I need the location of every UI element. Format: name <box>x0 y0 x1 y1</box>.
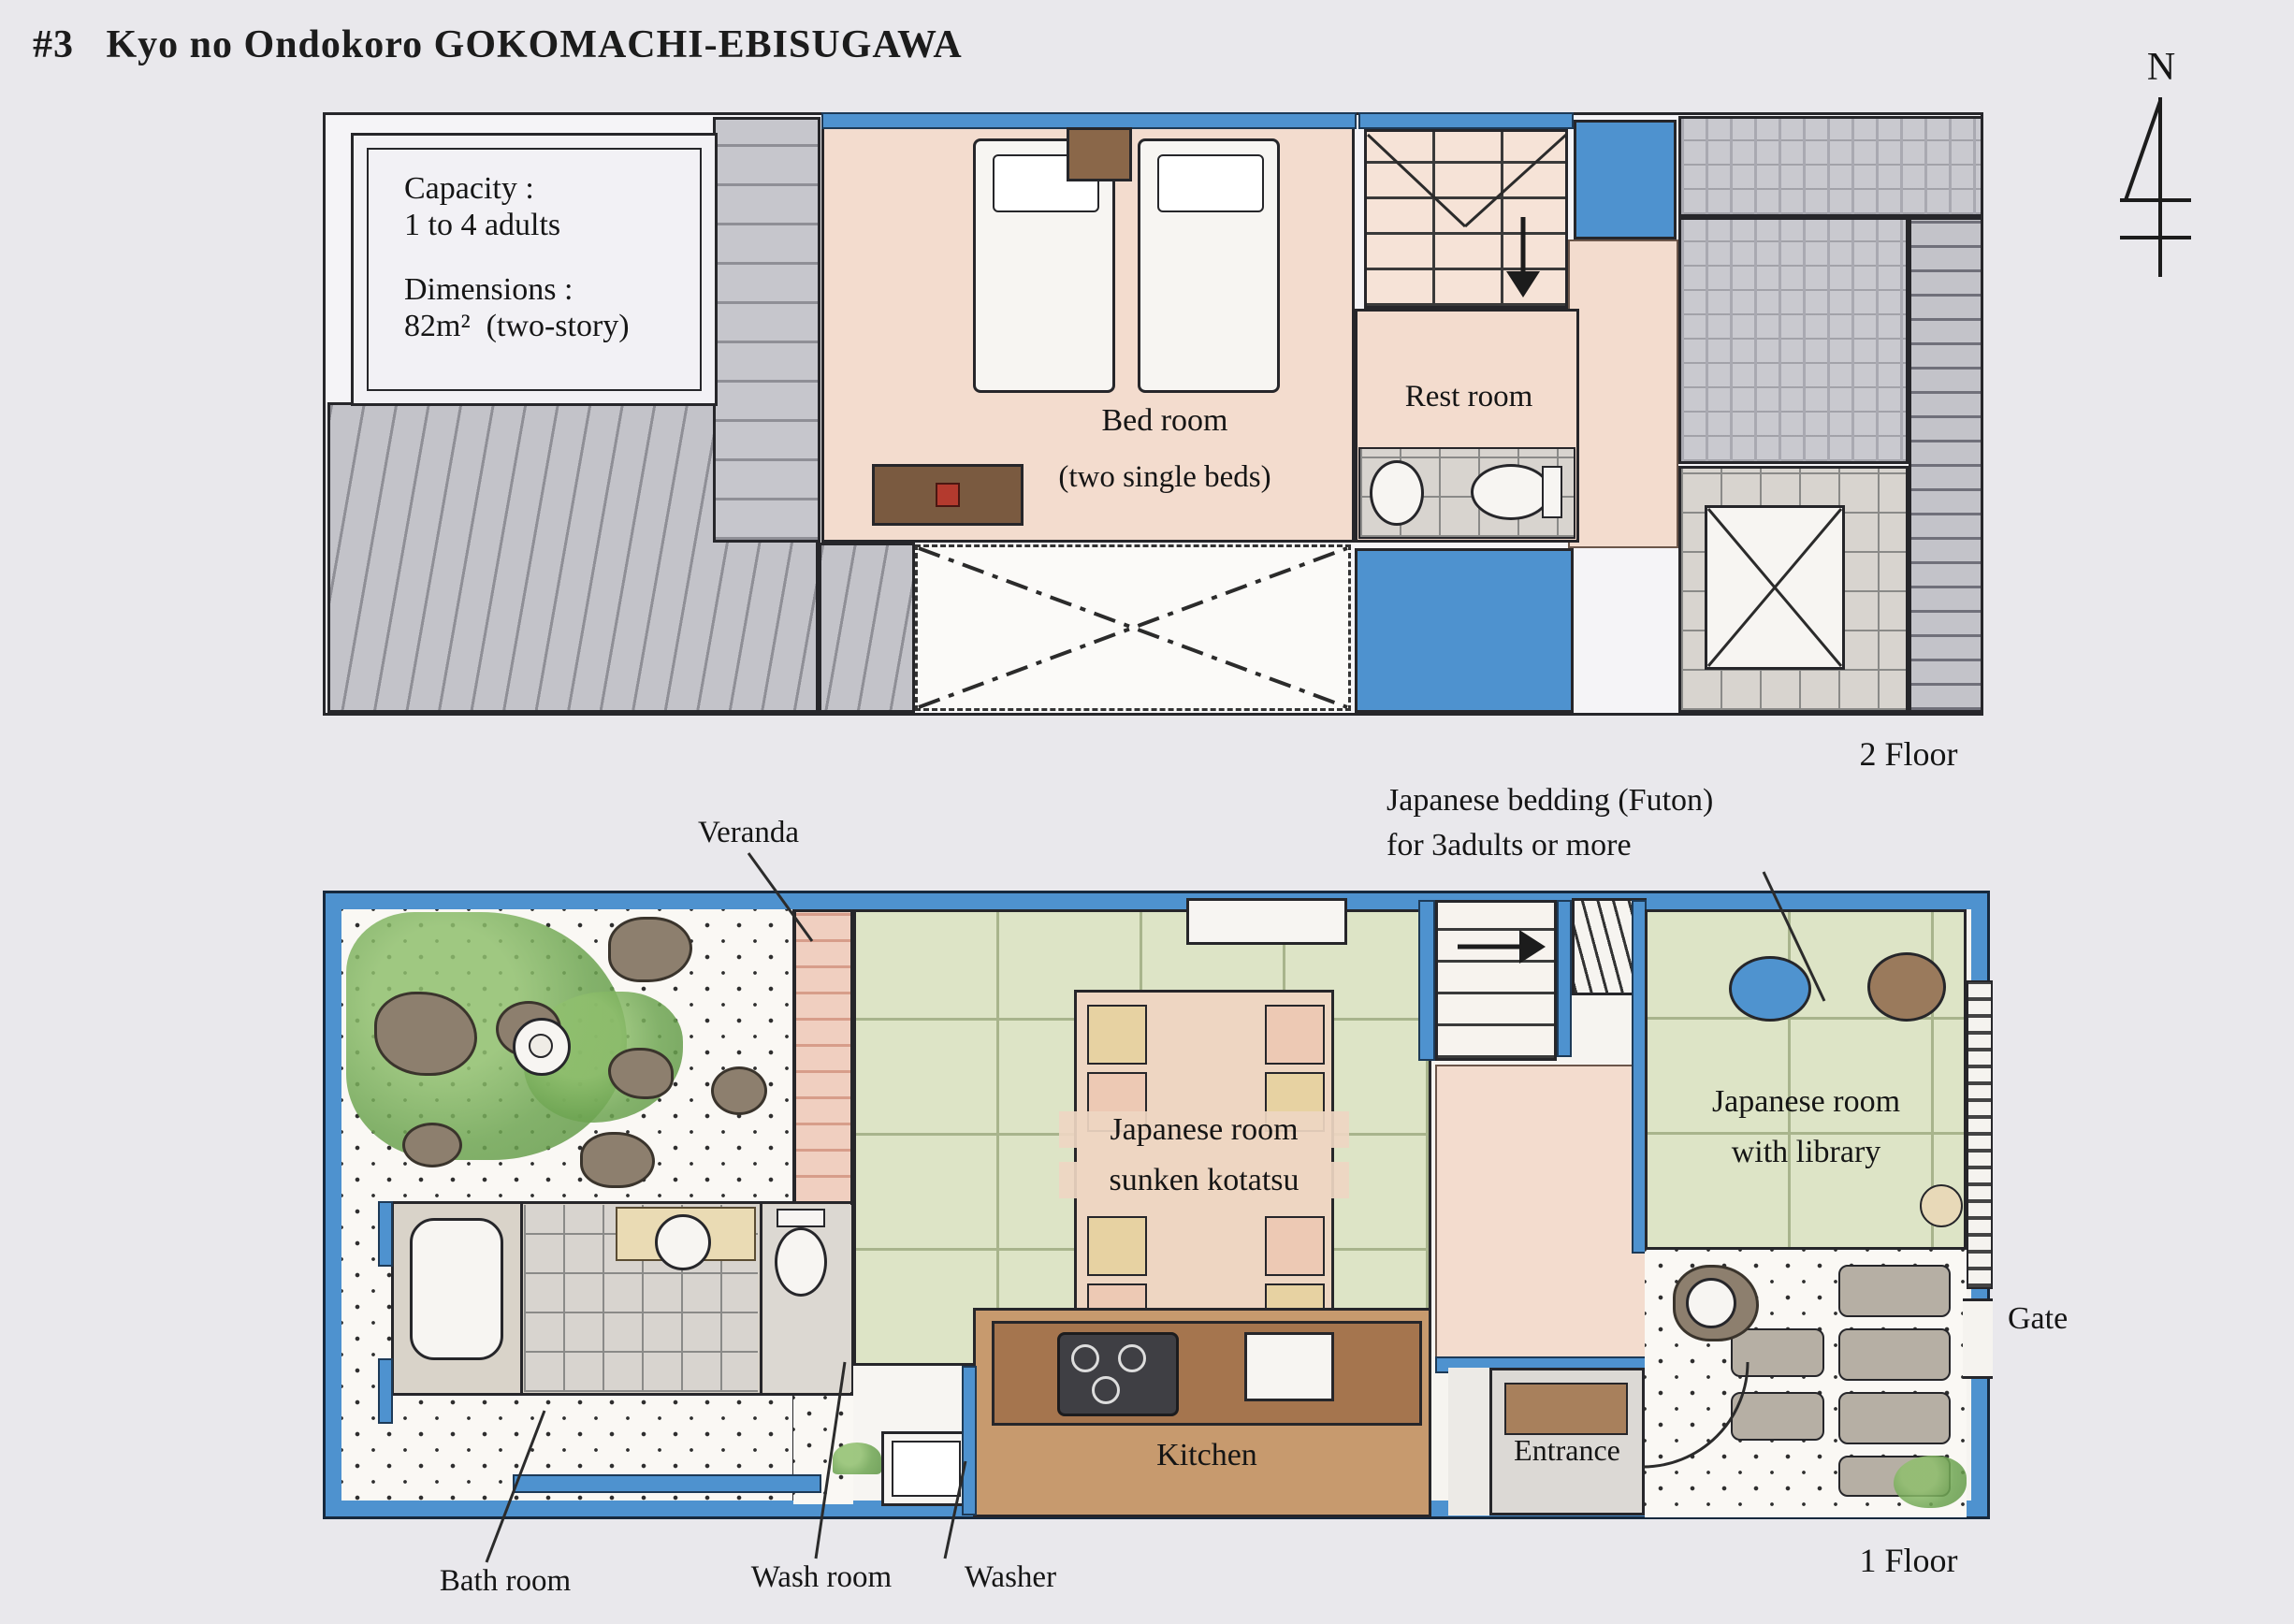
restroom-sink <box>1370 460 1424 526</box>
cushion-1 <box>1087 1005 1147 1065</box>
lattice-fence <box>1967 980 1993 1289</box>
toilet-tank <box>1542 466 1562 518</box>
floor2-roof-tiles-top <box>1678 116 1983 217</box>
washroom-label: Wash room <box>700 1560 943 1596</box>
stone-slab-5 <box>1731 1392 1824 1441</box>
entrance-label: Entrance <box>1488 1433 1647 1468</box>
floor1-label: 1 Floor <box>1815 1542 2002 1580</box>
void-open-below <box>915 544 1351 711</box>
kitchen-label: Kitchen <box>1104 1437 1310 1473</box>
bedroom-label: Bed room <box>1024 402 1305 439</box>
floor2-hall <box>1568 239 1678 548</box>
stair-wall-left <box>1418 900 1435 1061</box>
stone-slab-1 <box>1838 1265 1951 1317</box>
bedroom-note-label: (two single beds) <box>992 460 1338 496</box>
north-arrow-icon <box>2120 97 2191 277</box>
library-room-label-2: with library <box>1673 1134 1939 1170</box>
entrance-mat <box>1504 1383 1628 1435</box>
garden-rock-7 <box>402 1123 462 1167</box>
restroom-label: Rest room <box>1358 380 1579 415</box>
page-title: #3 Kyo no Ondokoro GOKOMACHI-EBISUGAWA <box>33 22 963 67</box>
kotatsu-room-label-2: sunken kotatsu <box>1059 1162 1349 1198</box>
library-room-label-1: Japanese room <box>1673 1083 1939 1120</box>
stove <box>1057 1332 1179 1416</box>
stair-wall-right <box>1557 900 1572 1057</box>
stone-slab-4 <box>1838 1392 1951 1444</box>
bath-wall-divider-1 <box>520 1203 523 1394</box>
dimensions-label: Dimensions : <box>404 271 700 308</box>
nightstand <box>1067 127 1132 181</box>
washroom-sink <box>655 1214 711 1270</box>
library-low-table <box>1729 956 1811 1022</box>
futon-note-line2: for 3adults or more <box>1387 827 1948 863</box>
entrance-vestibule <box>1448 1368 1489 1515</box>
futon-note-line1: Japanese bedding (Futon) <box>1387 782 1948 819</box>
gate-label: Gate <box>2008 1300 2129 1337</box>
washer-inner <box>892 1441 961 1497</box>
cushion-6 <box>1265 1216 1325 1276</box>
toilet1f-tank <box>777 1209 825 1227</box>
floor2-roof-plank-strip <box>713 117 820 543</box>
washer <box>881 1431 971 1506</box>
stone-basin-bowl <box>529 1034 553 1058</box>
veranda-strip <box>793 909 853 1207</box>
capacity-label: Capacity : <box>404 170 700 207</box>
court-plant <box>1894 1456 1967 1508</box>
bath-wall-blue-1 <box>378 1201 393 1267</box>
stairwell-top-wall <box>1358 112 1574 129</box>
toilet-bowl <box>1471 464 1551 520</box>
floor2-roof-edge-strip <box>1909 217 1983 713</box>
kitchen-counter <box>992 1321 1422 1426</box>
stone-basin <box>513 1018 571 1076</box>
floor2-roof-tiles-right <box>1678 217 1909 464</box>
burner-3 <box>1092 1376 1120 1404</box>
burner-2 <box>1118 1344 1146 1372</box>
veranda-label: Veranda <box>646 816 851 851</box>
kotatsu-room-label-1: Japanese room <box>1059 1111 1349 1148</box>
toilet1f-bowl <box>775 1227 827 1297</box>
compass-north-label: N <box>2141 45 2182 90</box>
floor2-label: 2 Floor <box>1806 735 2011 774</box>
desk-chair <box>936 483 960 507</box>
bath-wall-blue-2 <box>378 1358 393 1424</box>
floor2-roof-left-lower <box>819 543 915 713</box>
gate-opening <box>1963 1298 1993 1379</box>
capacity-value: 1 to 4 adults <box>404 207 700 243</box>
washer-plant <box>833 1443 881 1474</box>
garden-rock-6 <box>580 1132 655 1188</box>
kitchen-sink <box>1244 1332 1334 1401</box>
kotatsu-room-closet <box>1186 898 1347 945</box>
floor2-stairs <box>1364 129 1568 309</box>
bath-wall-blue-3 <box>513 1474 821 1493</box>
corridor <box>1435 1065 1647 1368</box>
garden-rock-5 <box>711 1066 767 1115</box>
bathroom-label: Bath room <box>402 1564 608 1600</box>
cushion-2 <box>1265 1005 1325 1065</box>
washer-label: Washer <box>917 1560 1104 1596</box>
burner-1 <box>1071 1344 1099 1372</box>
info-box: Capacity : 1 to 4 adults Dimensions : 82… <box>367 148 702 391</box>
floor-plan-page: { "title": "#3 Kyo no Ondokoro GOKOMACHI… <box>0 0 2294 1624</box>
dimensions-value: 82m² (two-story) <box>404 308 700 344</box>
floor1-stairs <box>1435 900 1557 1061</box>
bath-wall-divider-2 <box>760 1203 762 1394</box>
bed-single-2 <box>1138 138 1280 393</box>
bathtub <box>410 1218 503 1360</box>
library-chair <box>1867 952 1946 1022</box>
stone-slab-3 <box>1731 1328 1824 1377</box>
pillow-2 <box>1157 154 1264 212</box>
blue-terrace <box>1355 548 1574 713</box>
court-basin <box>1686 1278 1736 1328</box>
cushion-5 <box>1087 1216 1147 1276</box>
kitchen-wall-left <box>962 1366 977 1515</box>
skylight-window <box>1705 505 1845 670</box>
floor-cushion <box>1920 1184 1963 1227</box>
balcony-deck <box>1574 120 1677 239</box>
stone-slab-2 <box>1838 1328 1951 1381</box>
